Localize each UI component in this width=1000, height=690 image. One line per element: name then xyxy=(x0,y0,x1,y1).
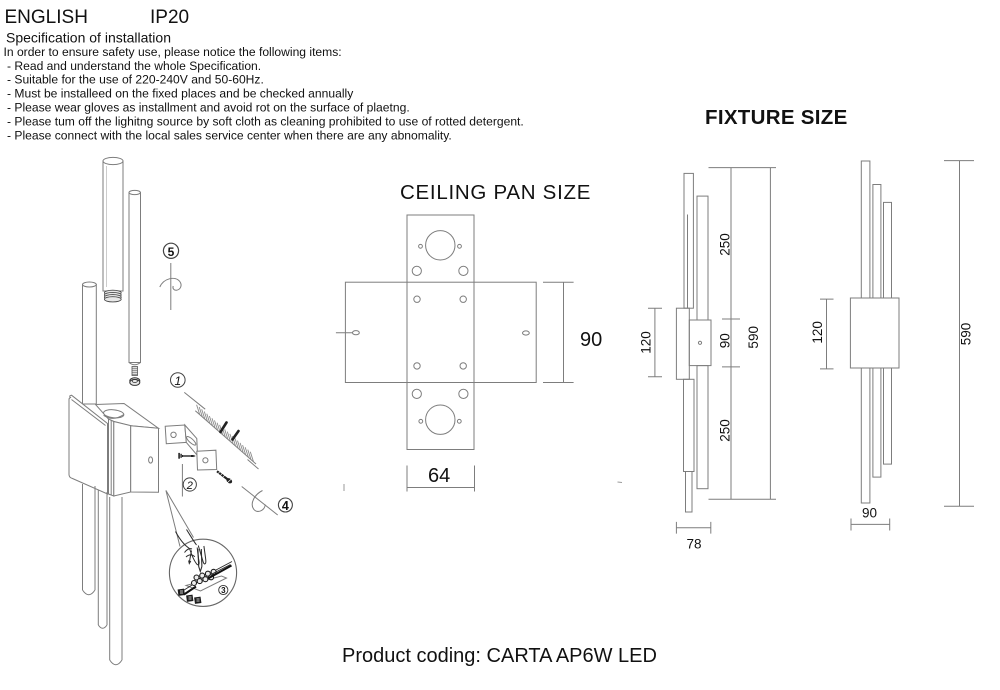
svg-text:1: 1 xyxy=(174,374,181,388)
svg-text:250: 250 xyxy=(718,419,733,442)
svg-text:Specification of installation: Specification of installation xyxy=(6,30,171,46)
svg-text:4: 4 xyxy=(282,499,289,513)
svg-text:- Read and understand the whol: - Read and understand the whole Specific… xyxy=(7,59,261,73)
svg-text:Product coding: CARTA AP6W LED: Product coding: CARTA AP6W LED xyxy=(342,645,657,667)
svg-text:250: 250 xyxy=(718,233,733,256)
svg-text:IP20: IP20 xyxy=(150,7,189,28)
svg-text:2: 2 xyxy=(186,480,193,492)
svg-text:In order to ensure safety use,: In order to ensure safety use, please no… xyxy=(4,45,342,59)
svg-text:590: 590 xyxy=(959,323,974,346)
svg-text:3: 3 xyxy=(221,586,226,595)
svg-text:FIXTURE SIZE: FIXTURE SIZE xyxy=(705,106,848,129)
svg-text:120: 120 xyxy=(639,331,654,354)
svg-text:5: 5 xyxy=(168,245,175,259)
svg-text:- Must be installeed on the fi: - Must be installeed on the fixed places… xyxy=(7,87,354,101)
svg-text:78: 78 xyxy=(686,536,701,551)
svg-text:- Please tum off the lighitng: - Please tum off the lighitng source by … xyxy=(7,115,524,129)
svg-text:64: 64 xyxy=(428,465,450,487)
svg-text:590: 590 xyxy=(746,326,761,349)
svg-text:- Please connect with the loca: - Please connect with the local sales se… xyxy=(7,129,452,143)
svg-text:CEILING PAN SIZE: CEILING PAN SIZE xyxy=(400,181,591,204)
svg-text:90: 90 xyxy=(718,333,733,348)
svg-text:90: 90 xyxy=(862,506,877,521)
svg-text:- Suitable for the use of 220-: - Suitable for the use of 220-240V and 5… xyxy=(7,73,264,87)
svg-text:120: 120 xyxy=(810,321,825,344)
svg-text:- Please wear gloves as instal: - Please wear gloves as installment and … xyxy=(7,101,410,115)
svg-text:90: 90 xyxy=(580,329,602,351)
svg-text:ENGLISH: ENGLISH xyxy=(5,7,88,28)
